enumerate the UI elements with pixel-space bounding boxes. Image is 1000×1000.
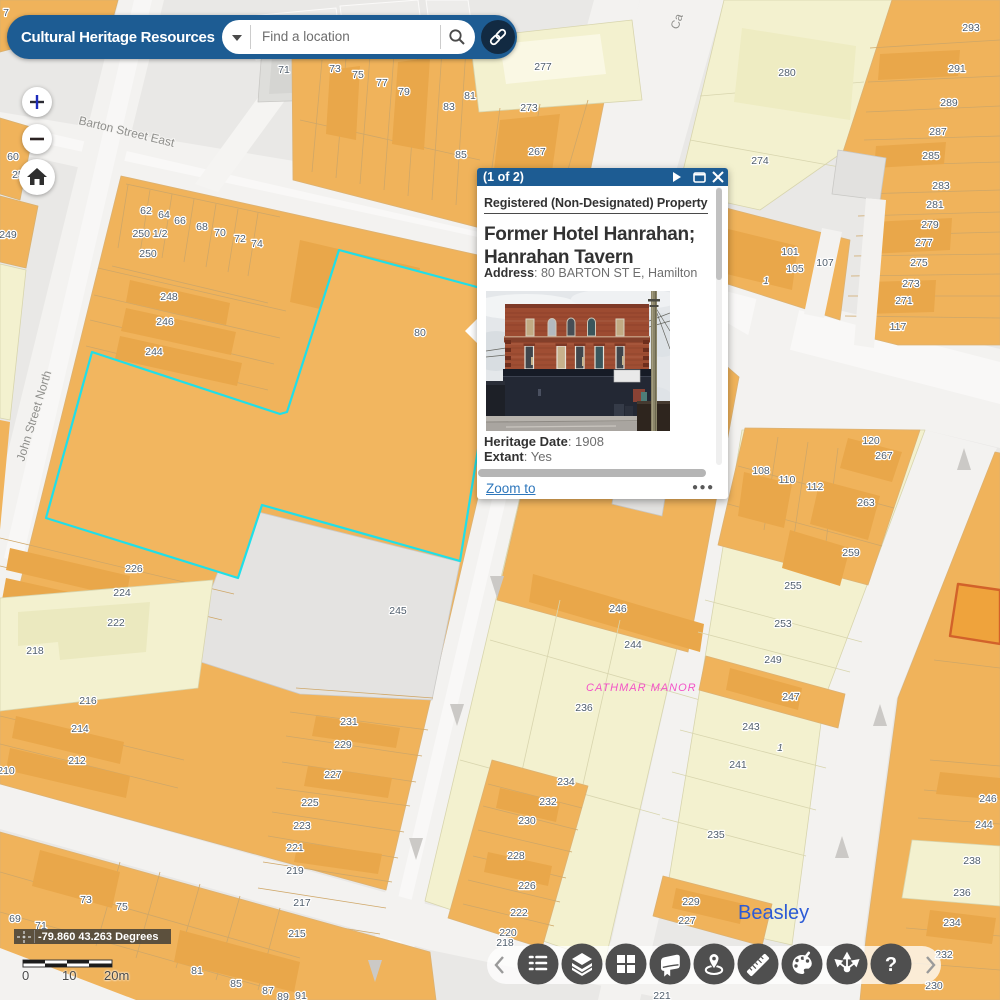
svg-text:214: 214: [71, 723, 89, 735]
svg-text:112: 112: [807, 481, 824, 493]
svg-text:244: 244: [624, 639, 642, 651]
svg-text:244: 244: [145, 346, 163, 358]
svg-text:217: 217: [293, 897, 311, 909]
svg-text:60: 60: [7, 151, 19, 163]
svg-text:235: 235: [707, 829, 725, 841]
svg-text:221: 221: [653, 990, 671, 1000]
svg-text:277: 277: [915, 237, 933, 249]
svg-text:263: 263: [857, 497, 875, 509]
svg-text:283: 283: [932, 180, 950, 192]
svg-text:234: 234: [557, 776, 575, 788]
svg-text:Beasley: Beasley: [738, 902, 809, 924]
svg-text:1: 1: [777, 742, 783, 754]
svg-text:253: 253: [774, 618, 792, 630]
svg-text:89: 89: [277, 991, 289, 1000]
svg-text:228: 228: [507, 850, 525, 862]
svg-text:1: 1: [763, 275, 769, 287]
svg-text:244: 244: [975, 819, 993, 831]
svg-text:66: 66: [174, 215, 186, 227]
svg-text:234: 234: [943, 917, 961, 929]
svg-text:238: 238: [963, 855, 981, 867]
svg-text:229: 229: [334, 739, 352, 751]
svg-text:250 1/2: 250 1/2: [132, 228, 167, 240]
svg-text:62: 62: [140, 205, 152, 217]
svg-text:74: 74: [251, 238, 263, 250]
svg-text:222: 222: [510, 907, 528, 919]
svg-text:277: 277: [534, 61, 552, 73]
svg-text:75: 75: [116, 901, 128, 913]
svg-text:287: 287: [929, 126, 947, 138]
svg-text:241: 241: [729, 759, 747, 771]
svg-text:69: 69: [9, 913, 21, 925]
svg-text:267: 267: [875, 450, 893, 462]
svg-text:215: 215: [288, 928, 306, 940]
svg-text:227: 227: [324, 769, 342, 781]
svg-text:245: 245: [389, 605, 407, 617]
svg-text:87: 87: [262, 985, 274, 997]
svg-text:243: 243: [742, 721, 760, 733]
svg-text:216: 216: [79, 695, 97, 707]
svg-text:226: 226: [125, 563, 143, 575]
svg-text:73: 73: [80, 894, 92, 906]
svg-text:85: 85: [455, 149, 467, 161]
svg-text:229: 229: [682, 896, 700, 908]
svg-text:77: 77: [376, 77, 388, 89]
svg-text:68: 68: [196, 221, 208, 233]
svg-text:227: 227: [678, 915, 696, 927]
svg-text:291: 291: [948, 63, 966, 75]
svg-text:271: 271: [895, 295, 913, 307]
svg-text:85: 85: [230, 978, 242, 990]
svg-text:CATHMAR MANOR: CATHMAR MANOR: [586, 682, 697, 694]
svg-text:120: 120: [862, 435, 880, 447]
svg-text:73: 73: [329, 63, 341, 75]
svg-text:250: 250: [139, 248, 157, 260]
svg-text:281: 281: [926, 199, 944, 211]
svg-text:110: 110: [779, 474, 796, 486]
svg-text:81: 81: [191, 965, 203, 977]
svg-text:285: 285: [922, 150, 940, 162]
svg-text:230: 230: [518, 815, 536, 827]
svg-text:101: 101: [781, 246, 799, 258]
svg-text:210: 210: [0, 765, 15, 777]
svg-text:71: 71: [278, 64, 290, 76]
svg-text:80: 80: [414, 327, 426, 339]
svg-text:218: 218: [26, 645, 44, 657]
svg-text:273: 273: [902, 278, 920, 290]
svg-text:246: 246: [609, 603, 627, 615]
svg-text:79: 79: [398, 86, 410, 98]
svg-text:274: 274: [751, 155, 769, 167]
svg-text:246: 246: [979, 793, 997, 805]
svg-text:236: 236: [575, 702, 593, 714]
svg-text:249: 249: [0, 229, 17, 241]
svg-text:212: 212: [68, 755, 86, 767]
svg-text:236: 236: [953, 887, 971, 899]
svg-text:224: 224: [113, 587, 131, 599]
svg-text:231: 231: [340, 716, 358, 728]
svg-text:219: 219: [286, 865, 304, 877]
svg-text:225: 225: [301, 797, 319, 809]
svg-text:259: 259: [842, 547, 860, 559]
svg-text:83: 83: [443, 101, 455, 113]
svg-text:232: 232: [539, 796, 557, 808]
svg-text:289: 289: [940, 97, 958, 109]
svg-text:267: 267: [528, 146, 546, 158]
svg-text:?: ?: [885, 954, 897, 976]
svg-text:75: 75: [352, 69, 364, 81]
svg-text:248: 248: [160, 291, 178, 303]
svg-text:246: 246: [156, 316, 174, 328]
svg-text:70: 70: [214, 227, 226, 239]
svg-text:293: 293: [962, 22, 980, 34]
svg-text:275: 275: [910, 257, 928, 269]
svg-text:222: 222: [107, 617, 125, 629]
svg-text:223: 223: [293, 820, 311, 832]
svg-text:107: 107: [816, 257, 834, 269]
svg-text:64: 64: [158, 209, 170, 221]
svg-text:247: 247: [782, 691, 800, 703]
svg-text:105: 105: [786, 263, 804, 275]
svg-text:279: 279: [921, 219, 939, 231]
svg-text:117: 117: [890, 321, 907, 333]
svg-text:108: 108: [752, 465, 770, 477]
svg-text:221: 221: [286, 842, 304, 854]
svg-text:249: 249: [764, 654, 782, 666]
svg-text:273: 273: [520, 102, 538, 114]
svg-text:255: 255: [784, 580, 802, 592]
svg-text:7: 7: [3, 7, 9, 19]
svg-text:91: 91: [295, 990, 307, 1000]
svg-text:226: 226: [518, 880, 536, 892]
svg-text:81: 81: [464, 90, 476, 102]
svg-text:72: 72: [234, 233, 246, 245]
svg-text:280: 280: [778, 67, 796, 79]
